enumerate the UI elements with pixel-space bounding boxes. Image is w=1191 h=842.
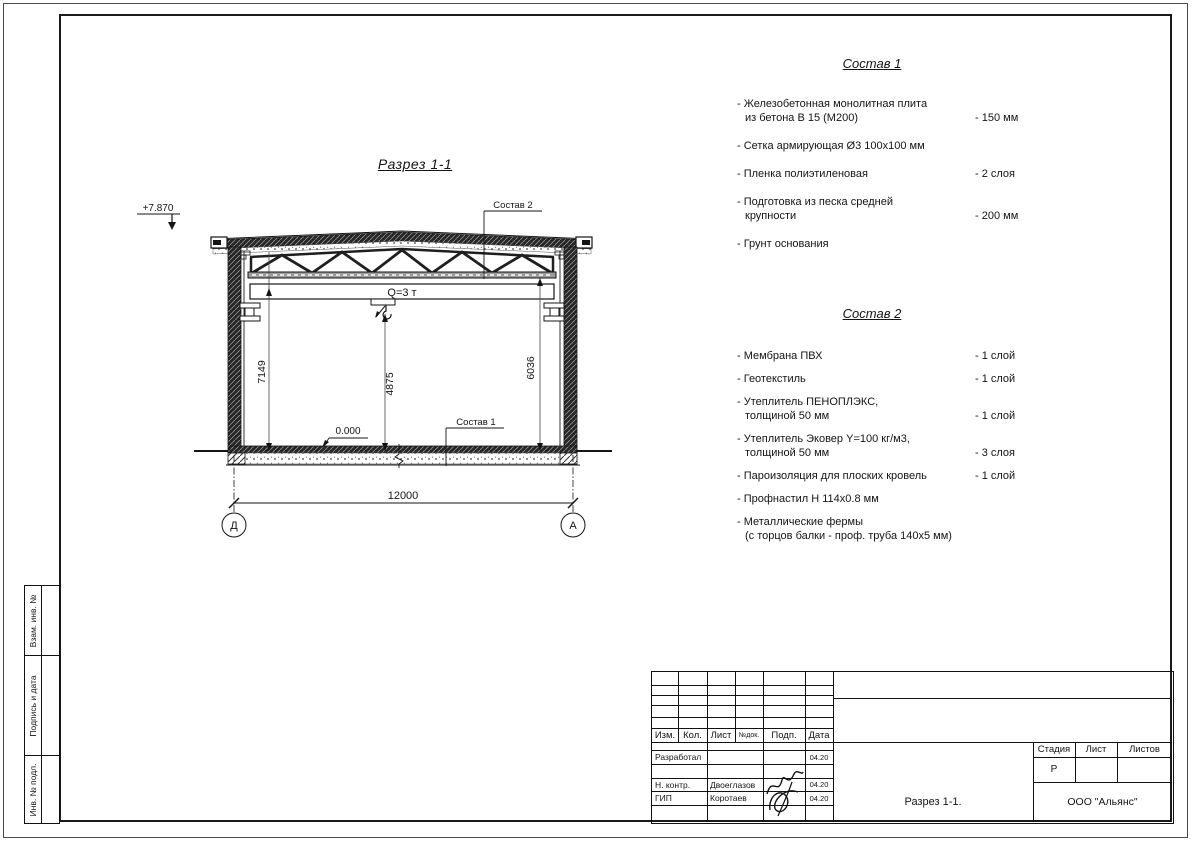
elevation-mark-top: +7.870 [137, 203, 180, 230]
axis-marker-left: Д [222, 513, 246, 537]
dim-6036: 6036 [525, 278, 543, 451]
list-item: - Пароизоляция для плоских кровель - 1 с… [737, 469, 1037, 483]
side-label-inv: Инв. № подл. [28, 763, 38, 816]
side-box-inv: Инв. № подл. [24, 755, 60, 824]
stamp-header-list: Лист [707, 728, 735, 742]
dim-6036-label: 6036 [525, 356, 537, 380]
stamp-header-data: Дата [805, 728, 833, 742]
composition-2-title: Состав 2 [737, 306, 1007, 321]
list-item: - Грунт основания [737, 237, 1037, 251]
section-drawing: +7.870 [60, 140, 705, 565]
list-item: - Металлические фермы(с торцов балки - п… [737, 515, 1037, 543]
dim-4875: 4875 [382, 314, 396, 451]
corbel-left [240, 303, 260, 321]
axis-left-label: Д [230, 520, 238, 532]
dim-7149-label: 7149 [256, 360, 268, 384]
stamp-header-kol: Кол. [678, 728, 707, 742]
side-label-podpis: Подпись и дата [28, 675, 38, 736]
stamp-name: Двоеглазов [710, 778, 762, 791]
crane-capacity-label: Q=3 т [387, 287, 416, 299]
list-item: - Сетка армирующая Ø3 100х100 мм [737, 139, 1037, 153]
item-value: - 200 мм [975, 209, 1018, 223]
item-line1: - Грунт основания [737, 237, 975, 251]
elevation-top-label: +7.870 [143, 203, 174, 214]
item-value: - 1 слой [975, 349, 1015, 363]
stamp-company: ООО "Альянс" [1033, 782, 1172, 822]
item-line1: - Профнастил Н 114х0.8 мм [737, 492, 975, 506]
item-line1: - Пленка полиэтиленовая [737, 167, 975, 181]
item-value: - 1 слой [975, 409, 1015, 423]
item-line2: толщиной 50 мм [737, 446, 975, 460]
stamp-doc-title: Разрез 1-1. [835, 782, 1031, 822]
list-item: - Утеплитель ПЕНОПЛЭКС,толщиной 50 мм - … [737, 395, 1037, 423]
item-value: - 1 слой [975, 469, 1015, 483]
stamp-date: 04.20 [805, 791, 833, 805]
stamp-role: Разработал [655, 750, 705, 764]
dim-7149: 7149 [256, 252, 272, 451]
item-line2: крупности [737, 209, 975, 223]
crane-beam: Q=3 т [250, 284, 554, 319]
stamp-role: ГИП [655, 791, 705, 805]
dim-12000-label: 12000 [388, 490, 419, 502]
drawing-sheet: Разрез 1-1 +7.870 [0, 0, 1191, 842]
side-label-vzam: Взам. инв. № [28, 594, 38, 647]
stamp-name: Коротаев [710, 791, 762, 805]
composition-1: Состав 1 - Железобетонная монолитная пли… [737, 56, 1037, 265]
wall-left [228, 247, 250, 453]
item-line1: - Железобетонная монолитная плита [737, 97, 975, 111]
stamp-header-izm: Изм. [652, 728, 678, 742]
stamp-name [710, 750, 762, 764]
item-line1: - Мембрана ПВХ [737, 349, 975, 363]
item-value: - 3 слоя [975, 446, 1015, 460]
item-line1: - Подготовка из песка средней [737, 195, 975, 209]
list-item: - Геотекстиль - 1 слой [737, 372, 1037, 386]
roof-truss [248, 249, 556, 278]
elevation-zero-label: 0.000 [335, 426, 360, 437]
elevation-mark-zero: 0.000 [322, 426, 368, 448]
stamp-date: 04.20 [805, 750, 833, 764]
leader-sostav2-label: Состав 2 [493, 200, 532, 211]
stamp-header-podp: Подп. [763, 728, 805, 742]
item-line1: - Сетка армирующая Ø3 100х100 мм [737, 139, 975, 153]
stamp-sheets-label: Листов [1117, 742, 1172, 757]
list-item: - Железобетонная монолитная плитаиз бето… [737, 97, 1037, 125]
corbel-right [544, 303, 564, 321]
item-value: - 2 слоя [975, 167, 1015, 181]
stamp-date: 04.20 [805, 778, 833, 791]
dim-4875-label: 4875 [384, 372, 396, 396]
stamp-sheet-label: Лист [1075, 742, 1117, 757]
list-item: - Подготовка из песка среднейкрупности -… [737, 195, 1037, 223]
item-line1: - Утеплитель ПЕНОПЛЭКС, [737, 395, 975, 409]
side-box-podpis: Подпись и дата [24, 655, 60, 756]
item-line1: - Металлические фермы [737, 515, 975, 529]
axis-marker-right: А [561, 513, 585, 537]
item-line1: - Геотекстиль [737, 372, 975, 386]
list-item: - Профнастил Н 114х0.8 мм [737, 492, 1037, 506]
item-line1: - Утеплитель Эковер Y=100 кг/м3, [737, 432, 975, 446]
leader-sostav1-label: Состав 1 [456, 417, 495, 428]
list-item: - Утеплитель Эковер Y=100 кг/м3,толщиной… [737, 432, 1037, 460]
list-item: - Мембрана ПВХ - 1 слой [737, 349, 1037, 363]
title-block: Изм. Кол. Лист №док. Подп. Дата Разработ… [651, 671, 1174, 824]
item-line1: - Пароизоляция для плоских кровель [737, 469, 975, 483]
item-value: - 150 мм [975, 111, 1018, 125]
item-line2: из бетона В 15 (М200) [737, 111, 975, 125]
stamp-role: Н. контр. [655, 778, 705, 791]
composition-2: Состав 2 - Мембрана ПВХ - 1 слой - Геоте… [737, 306, 1037, 552]
wall-right [555, 247, 577, 453]
side-box-vzam: Взам. инв. № [24, 585, 60, 656]
item-line2: толщиной 50 мм [737, 409, 975, 423]
composition-1-title: Состав 1 [737, 56, 1007, 71]
item-value: - 1 слой [975, 372, 1015, 386]
stamp-header-ndoc: №док. [735, 728, 763, 742]
list-item: - Пленка полиэтиленовая - 2 слоя [737, 167, 1037, 181]
floor-slab [194, 444, 612, 468]
stamp-stage-value: Р [1033, 757, 1075, 782]
stamp-stage-label: Стадия [1033, 742, 1075, 757]
axis-right-label: А [569, 520, 577, 532]
signature-scribble [764, 766, 806, 818]
item-line2: (с торцов балки - проф. труба 140х5 мм) [737, 529, 975, 543]
